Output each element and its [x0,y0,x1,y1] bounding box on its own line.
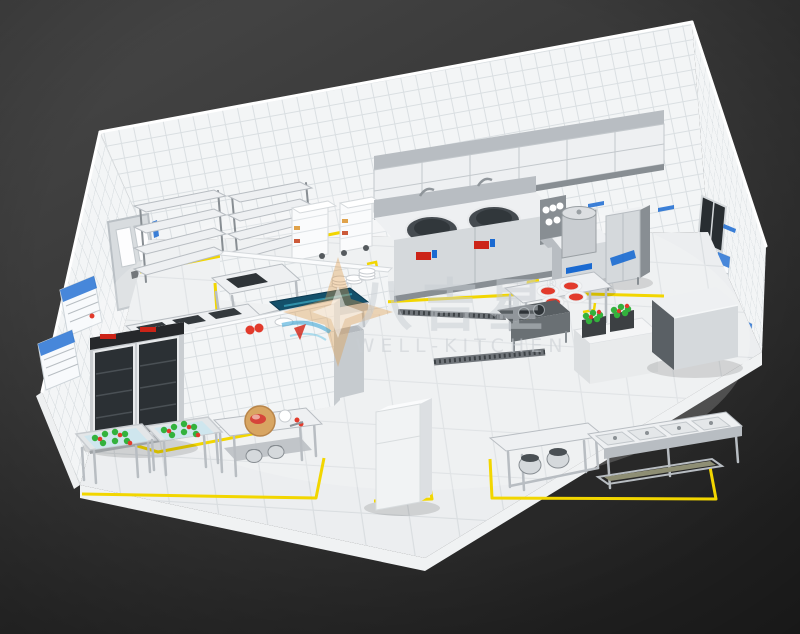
kitchen-3d-render: Window Wall posters Wall signs Service d… [0,0,800,634]
watermark-brand-en: WELL-KITCHEN [356,335,569,357]
stainless-cabinet: Stainless cabinet [647,287,743,378]
watermark-registered-mark: ® [545,277,558,292]
watermark-brand-cn: 八吉星 [356,274,554,339]
kitchen-scene: Window Wall posters Wall signs Service d… [0,0,800,634]
